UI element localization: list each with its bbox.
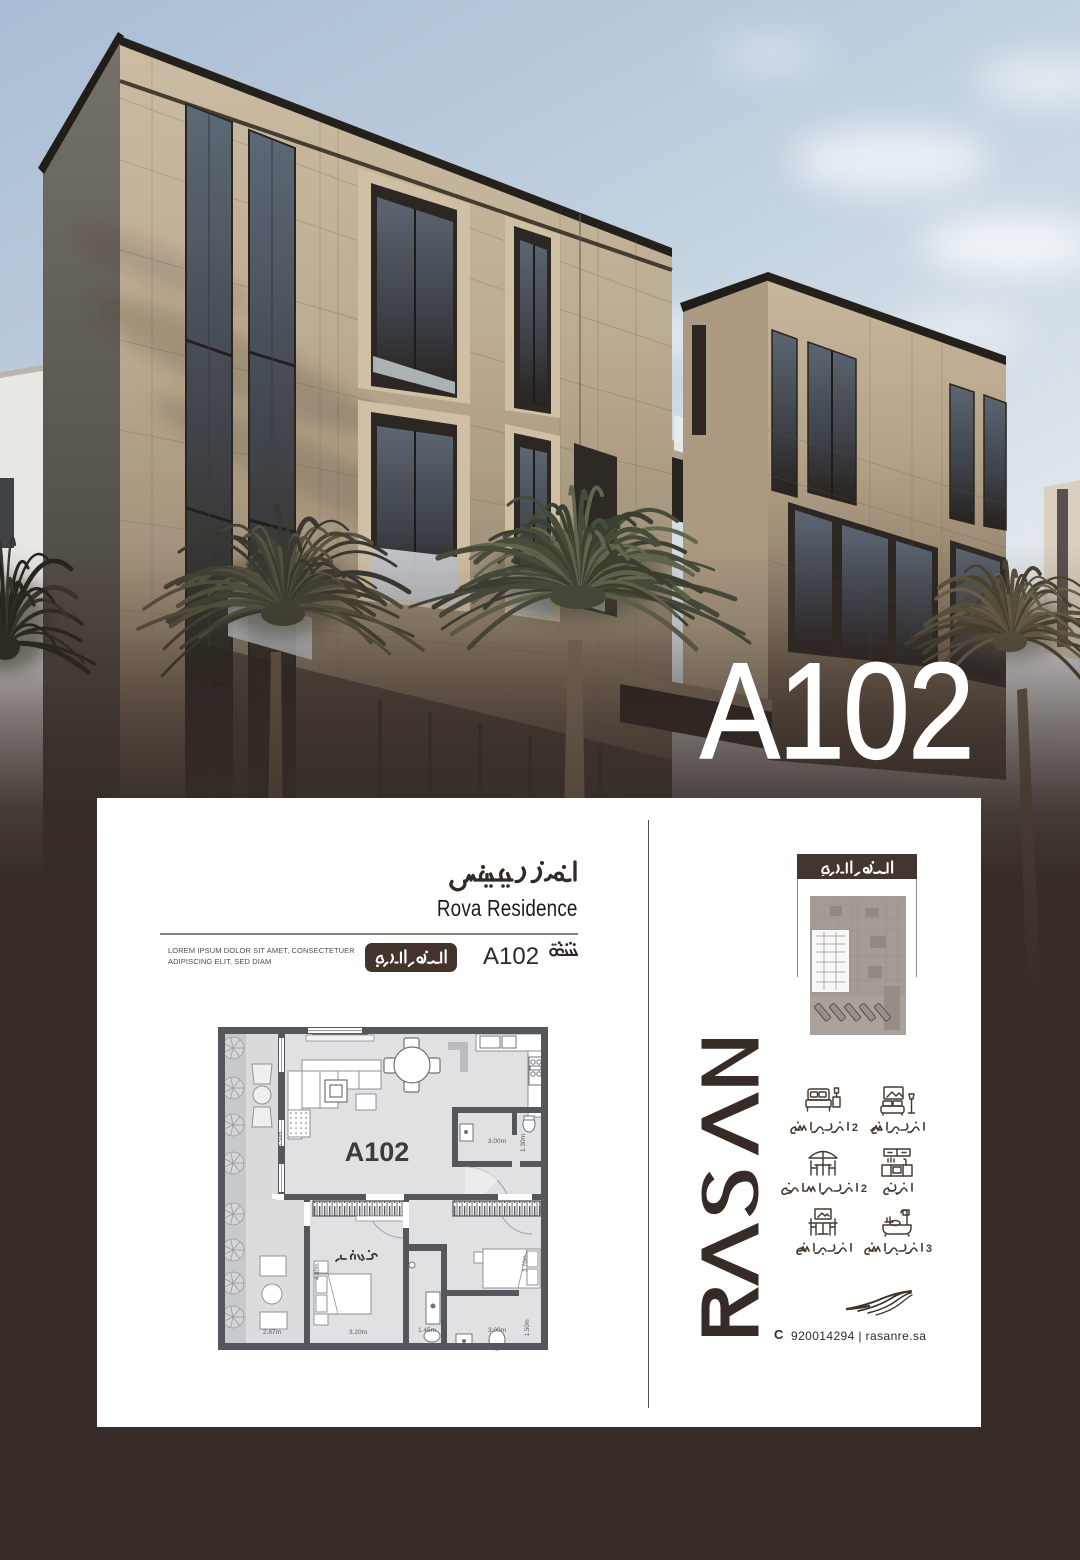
svg-text:5.50m: 5.50m: [278, 1131, 284, 1147]
svg-text:1.45m: 1.45m: [418, 1327, 436, 1334]
svg-text:3.00m: 3.00m: [488, 1327, 506, 1334]
svg-text:3: 3: [926, 1243, 932, 1255]
svg-text:2: 2: [861, 1183, 867, 1195]
svg-text:3.00m: 3.00m: [488, 1138, 506, 1145]
svg-text:4.80m: 4.80m: [315, 1263, 321, 1280]
svg-text:2: 2: [852, 1122, 858, 1134]
svg-text:3.20m: 3.20m: [349, 1329, 367, 1336]
svg-text:3.70m: 3.70m: [523, 1255, 529, 1272]
svg-text:1.50m: 1.50m: [525, 1319, 531, 1336]
svg-text:1.30m: 1.30m: [520, 1134, 527, 1152]
svg-text:2.87m: 2.87m: [263, 1329, 281, 1336]
svg-text:A102: A102: [345, 1137, 410, 1167]
